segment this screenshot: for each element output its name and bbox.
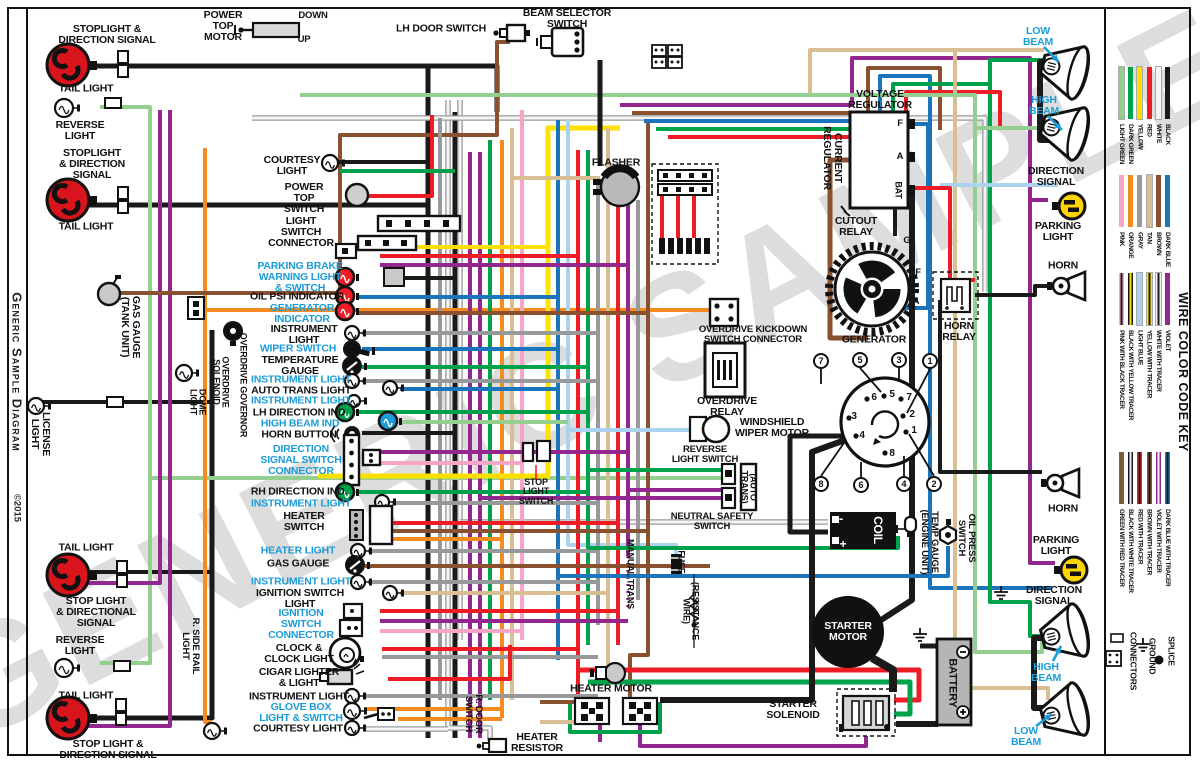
wiring-diagram-page: GENERIC SAMPLE Generic Sample Diagram ©2… <box>0 0 1200 768</box>
title-strip-divider <box>26 7 28 756</box>
wire-color-code-key-title: WIRE COLOR CODE KEY <box>1176 292 1190 452</box>
key-panel-divider <box>1104 7 1106 756</box>
page-title: Generic Sample Diagram <box>10 292 25 451</box>
copyright: ©2015 <box>12 494 23 522</box>
diagram-frame <box>7 7 1191 756</box>
